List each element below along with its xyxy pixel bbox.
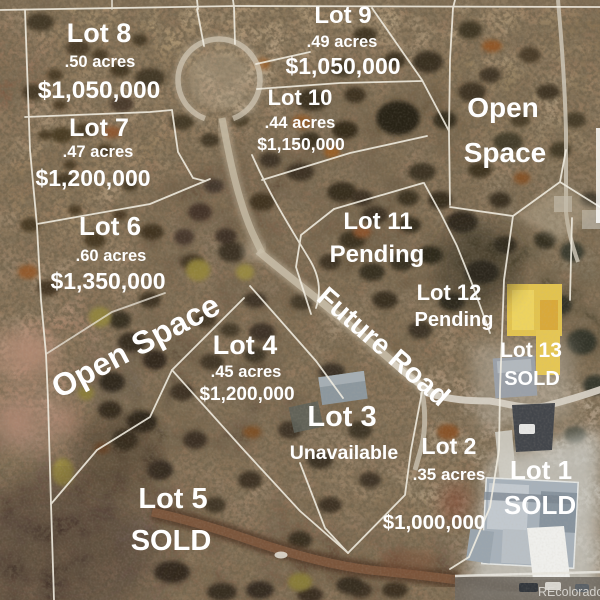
svg-text:SOLD: SOLD [131,525,212,557]
svg-text:REcolorado: REcolorado [538,585,600,599]
svg-text:Lot 2: Lot 2 [422,433,477,459]
svg-text:Lot 11: Lot 11 [343,208,412,235]
svg-text:$1,050,000: $1,050,000 [285,53,400,79]
svg-text:.50 acres: .50 acres [65,53,136,71]
svg-text:.44 acres: .44 acres [265,114,336,132]
svg-text:SOLD: SOLD [504,490,576,520]
svg-text:Lot 5: Lot 5 [138,483,207,515]
svg-text:.45 acres: .45 acres [211,363,282,381]
svg-text:Pending: Pending [330,241,425,268]
svg-text:$1,200,000: $1,200,000 [199,384,294,405]
svg-text:Pending: Pending [415,309,494,331]
svg-text:Lot 4: Lot 4 [213,330,278,360]
svg-text:Lot 1: Lot 1 [510,455,572,485]
svg-text:Lot 9: Lot 9 [314,2,371,29]
svg-text:.47 acres: .47 acres [63,143,134,161]
svg-text:Lot 7: Lot 7 [69,114,129,142]
svg-text:Space: Space [464,137,547,168]
svg-text:$1,000,000: $1,000,000 [383,511,486,534]
svg-text:Lot 8: Lot 8 [67,18,132,48]
svg-text:.49 acres: .49 acres [307,33,378,51]
svg-text:Open: Open [467,92,539,123]
svg-text:.60 acres: .60 acres [76,247,147,265]
svg-text:SOLD: SOLD [504,368,560,390]
svg-text:.35 acres: .35 acres [413,465,486,484]
svg-text:$1,050,000: $1,050,000 [38,77,161,104]
svg-text:Lot 13: Lot 13 [500,339,562,362]
svg-text:$1,150,000: $1,150,000 [257,134,345,154]
svg-text:Lot 3: Lot 3 [307,401,376,433]
svg-text:$1,350,000: $1,350,000 [50,268,165,294]
svg-text:Lot 10: Lot 10 [268,85,333,110]
svg-text:Unavailable: Unavailable [290,442,399,464]
svg-text:Lot 6: Lot 6 [79,211,141,241]
svg-text:$1,200,000: $1,200,000 [35,165,150,191]
svg-text:Lot 12: Lot 12 [417,280,482,305]
